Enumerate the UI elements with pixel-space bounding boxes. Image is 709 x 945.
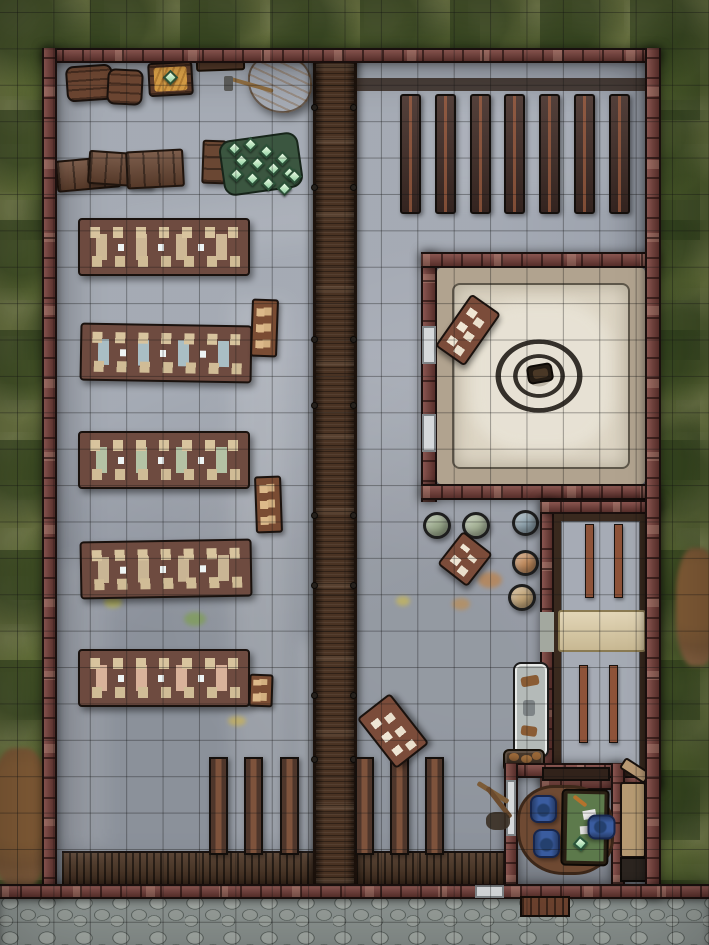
- walkway-cleat-r5: [350, 512, 357, 519]
- walkway-cleat-r4: [350, 402, 357, 409]
- walkway-cleat-r6: [350, 582, 357, 589]
- shrine-room-door-lower: [422, 414, 436, 452]
- worktable-3: [78, 431, 250, 489]
- board-stack-3: [125, 149, 185, 190]
- pantry-item-3: [520, 725, 537, 737]
- walkway-cleat-l4: [311, 402, 318, 409]
- corridor-mat: [620, 857, 647, 882]
- church-pew-3: [470, 94, 491, 214]
- floor-bench-3: [280, 757, 299, 855]
- dye-pot-5: [508, 584, 536, 611]
- dye-pot-3: [512, 510, 539, 536]
- stain-yellow-3: [396, 596, 410, 606]
- walkway-cleat-l3: [311, 336, 318, 343]
- shelf-cabinet-2: [254, 476, 283, 534]
- shrine-room-door-upper: [422, 326, 436, 364]
- walkway-cleat-r3: [350, 336, 357, 343]
- stain-orange-2: [452, 598, 470, 610]
- church-pew-7: [609, 94, 630, 214]
- shrine-room-wall-top: [421, 252, 660, 268]
- corridor-bench: [620, 782, 646, 858]
- hall-room-wall-top: [540, 500, 661, 514]
- office-chair-1: [530, 795, 557, 823]
- hall-bench-2: [614, 524, 623, 598]
- walkway-cleat-l5: [311, 512, 318, 519]
- worktable-4: [80, 539, 253, 600]
- pitchfork-head: [224, 76, 233, 91]
- hall-bench-1: [585, 524, 594, 598]
- worktable-1: [78, 218, 250, 276]
- hall-room-door-left: [540, 612, 554, 652]
- shelf-cabinet-3: [248, 674, 273, 708]
- walkway-cleat-l2: [311, 184, 318, 191]
- church-pew-5: [539, 94, 560, 214]
- walkway-cleat-r7: [350, 692, 357, 699]
- exterior-door-bottom: [475, 885, 504, 898]
- walkway-cleat-l7: [311, 692, 318, 699]
- church-pew-1: [400, 94, 421, 214]
- cobblestone-road: [0, 893, 709, 945]
- dye-pot-1: [423, 512, 451, 539]
- floor-bench-1: [209, 757, 228, 855]
- church-pew-6: [574, 94, 595, 214]
- floor-bench-6: [425, 757, 444, 855]
- stain-green-1: [184, 612, 206, 626]
- floor-bench-2: [244, 757, 263, 855]
- floor-plank-strip: [62, 851, 509, 884]
- walkway-cleat-r1: [350, 104, 357, 111]
- hall-bench-4: [609, 665, 618, 743]
- stain-orange-1: [478, 572, 502, 588]
- shelf-cabinet-1: [250, 299, 279, 358]
- junk-pile: [486, 812, 510, 830]
- hall-room-rug: [558, 610, 646, 652]
- pantry-item-2: [523, 700, 535, 716]
- wall-bottom: [0, 884, 709, 899]
- worktable-5: [78, 649, 250, 707]
- shrine-room-wall-bottom: [421, 484, 660, 500]
- office-chair-3: [588, 815, 616, 840]
- office-shelf: [542, 767, 610, 781]
- battle-map-canvas[interactable]: [0, 0, 709, 945]
- walkway-cleat-l6: [311, 582, 318, 589]
- dirt-path-right: [676, 548, 709, 666]
- entry-steps: [520, 896, 570, 917]
- bread-loaf-3: [532, 752, 541, 760]
- church-pew-4: [504, 94, 525, 214]
- wall-right: [645, 48, 661, 899]
- walkway-cleat-l1: [311, 104, 318, 111]
- hall-bench-3: [579, 665, 588, 743]
- office-chair-2: [533, 829, 560, 858]
- floor-bench-5: [390, 757, 409, 855]
- beam-shadow-right: [357, 78, 645, 91]
- walkway-cleat-l8: [311, 756, 318, 763]
- walkway-cleat-r2: [350, 184, 357, 191]
- bread-loaf-2: [521, 755, 532, 763]
- dye-pot-4: [512, 550, 539, 576]
- bread-loaf-1: [509, 753, 519, 761]
- stain-amber-2: [228, 716, 246, 726]
- church-pew-2: [435, 94, 456, 214]
- shrine-room-wall-left: [421, 252, 437, 502]
- wall-top: [42, 48, 661, 63]
- floor-bench-4: [355, 757, 374, 855]
- worktable-2: [80, 323, 253, 384]
- wall-left: [42, 48, 57, 899]
- crate-barrel-2: [106, 68, 144, 106]
